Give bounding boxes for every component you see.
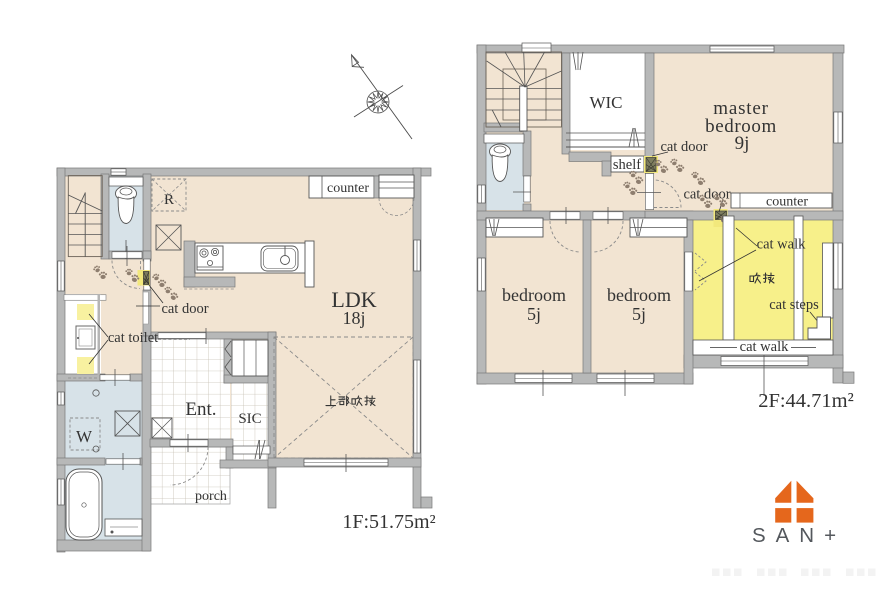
svg-text:cat door: cat door	[660, 139, 707, 155]
svg-text:SAN+: SAN+	[752, 524, 846, 547]
svg-text:porch: porch	[195, 489, 227, 504]
svg-text:WIC: WIC	[589, 93, 622, 112]
svg-text:bedroom: bedroom	[502, 285, 566, 305]
svg-text:cat walk: cat walk	[757, 237, 806, 253]
svg-text:5j: 5j	[527, 304, 541, 324]
svg-text:cat door: cat door	[161, 301, 208, 317]
svg-text:bedroom: bedroom	[607, 285, 671, 305]
svg-text:W: W	[76, 427, 93, 446]
svg-text:shelf: shelf	[613, 157, 641, 173]
svg-text:18j: 18j	[342, 308, 365, 328]
svg-text:cat toilet: cat toilet	[108, 330, 158, 346]
svg-text:SIC: SIC	[238, 411, 261, 427]
svg-text:2F:44.71m²: 2F:44.71m²	[758, 390, 854, 412]
svg-text:5j: 5j	[632, 304, 646, 324]
svg-text:Ent.: Ent.	[185, 399, 216, 420]
svg-text:counter: counter	[327, 181, 369, 196]
svg-text:9j: 9j	[735, 133, 750, 154]
svg-text:cat walk: cat walk	[740, 339, 789, 355]
svg-text:1F:51.75m²: 1F:51.75m²	[342, 511, 435, 533]
svg-text:cat steps: cat steps	[769, 297, 819, 313]
svg-text:R: R	[164, 192, 174, 208]
svg-text:counter: counter	[766, 195, 808, 210]
